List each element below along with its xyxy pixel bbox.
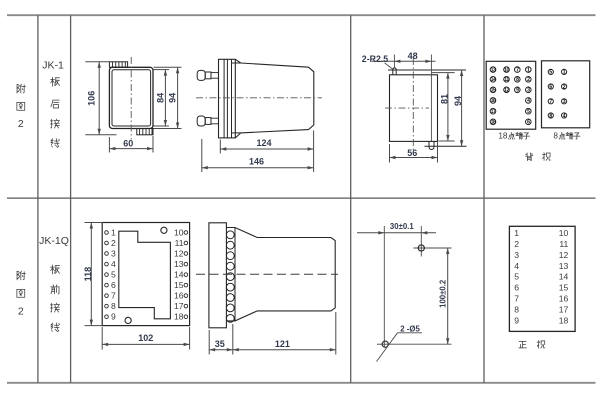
svg-text:7: 7 [549,99,552,105]
svg-text:3: 3 [514,250,519,260]
svg-text:16: 16 [174,291,184,301]
svg-text:16: 16 [491,98,496,104]
svg-text:5: 5 [111,270,116,280]
svg-text:5: 5 [514,272,519,282]
svg-text:1: 1 [514,228,519,238]
svg-text:10: 10 [504,67,509,73]
svg-text:18: 18 [491,120,496,126]
svg-text:7: 7 [111,291,116,301]
svg-text:118: 118 [83,267,93,282]
svg-text:12: 12 [504,88,509,94]
svg-text:8: 8 [549,113,552,119]
svg-text:14: 14 [491,77,496,83]
svg-text:15: 15 [559,283,569,293]
svg-text:4: 4 [111,259,116,269]
svg-text:10: 10 [174,228,184,238]
svg-text:2: 2 [18,118,24,130]
svg-text:JK-1: JK-1 [42,60,64,72]
svg-text:17: 17 [559,305,569,315]
svg-text:9: 9 [111,312,116,322]
svg-text:5: 5 [549,70,552,76]
svg-text:1: 1 [563,70,566,76]
svg-text:18: 18 [174,312,184,322]
svg-text:13: 13 [491,67,496,73]
svg-text:9: 9 [514,315,519,325]
svg-text:3: 3 [111,249,116,259]
svg-text:6: 6 [514,283,519,293]
svg-text:1: 1 [111,228,116,238]
svg-text:2 -Ø5: 2 -Ø5 [400,325,420,334]
svg-text:81: 81 [439,94,449,104]
svg-text:146: 146 [249,156,264,166]
svg-text:15: 15 [491,88,496,94]
svg-text:8: 8 [111,301,116,311]
svg-text:17: 17 [491,109,496,115]
svg-text:56: 56 [407,148,417,158]
svg-text:11: 11 [559,239,568,249]
svg-text:7: 7 [514,294,519,304]
svg-text:8: 8 [514,305,519,315]
svg-text:48: 48 [408,51,418,61]
svg-text:121: 121 [275,339,290,349]
svg-text:84: 84 [155,93,165,103]
svg-text:18: 18 [498,132,508,141]
svg-text:8: 8 [553,132,558,141]
svg-text:2: 2 [18,305,24,317]
svg-text:11: 11 [175,238,184,248]
svg-text:10: 10 [559,228,569,238]
svg-text:13: 13 [559,261,569,271]
svg-text:124: 124 [256,138,271,148]
svg-text:JK-1Q: JK-1Q [39,235,69,247]
svg-text:4: 4 [563,113,566,119]
svg-text:3: 3 [563,99,566,105]
svg-text:35: 35 [215,339,225,349]
svg-text:18: 18 [559,315,569,325]
svg-text:2: 2 [111,238,116,248]
svg-text:15: 15 [174,280,184,290]
svg-text:6: 6 [111,280,116,290]
svg-text:14: 14 [174,270,184,280]
svg-text:11: 11 [504,77,509,83]
svg-text:17: 17 [174,301,184,311]
svg-text:30±0.1: 30±0.1 [390,222,414,231]
svg-text:94: 94 [453,96,463,106]
svg-text:16: 16 [559,294,569,304]
svg-text:6: 6 [549,84,552,90]
svg-text:13: 13 [174,259,184,269]
svg-text:12: 12 [174,249,184,259]
svg-text:2: 2 [563,84,566,90]
svg-text:106: 106 [87,91,97,106]
svg-text:2-R2.5: 2-R2.5 [362,54,389,64]
svg-text:2: 2 [514,239,519,249]
svg-text:60: 60 [123,139,133,149]
svg-text:100±0.2: 100±0.2 [438,279,447,308]
svg-text:14: 14 [559,272,569,282]
svg-text:12: 12 [559,250,569,260]
svg-text:94: 94 [167,93,177,103]
svg-text:102: 102 [138,333,153,343]
svg-text:4: 4 [514,261,519,271]
